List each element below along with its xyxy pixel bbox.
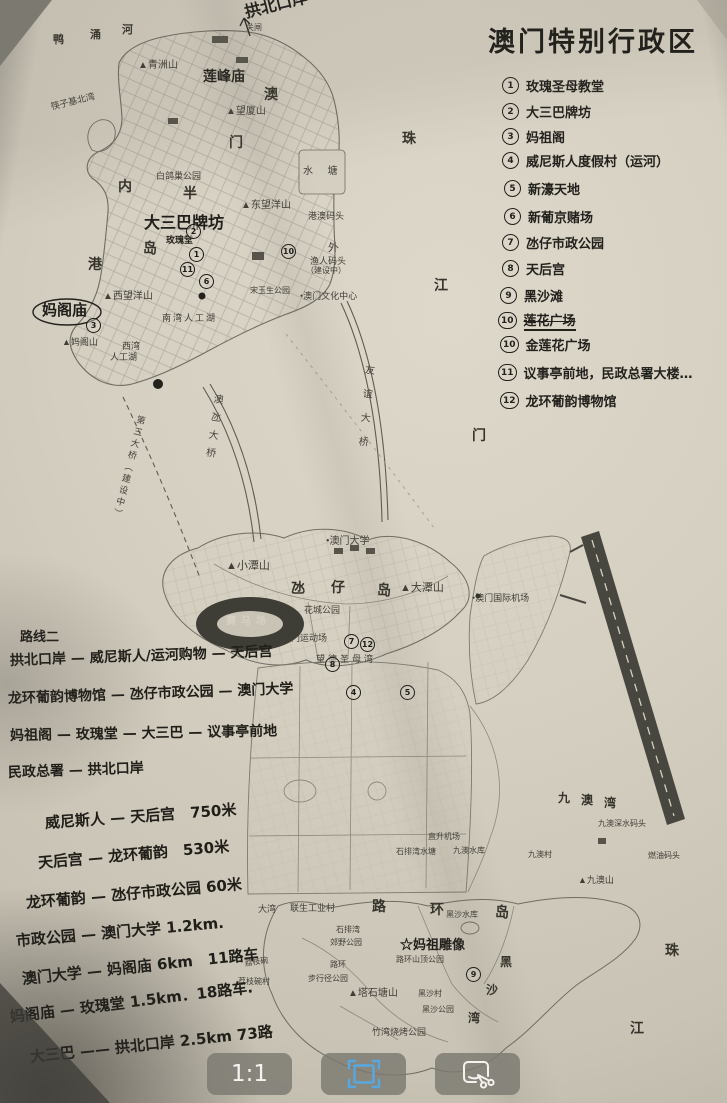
- viewer-toolbar: 1:1: [0, 1053, 727, 1095]
- map-photo[interactable]: 拱北口岸关闸鸭涌河▲青洲山筷子基北湾莲峰庙▲望厦山澳门水 塘白鸽巢公园内港半岛大…: [0, 0, 727, 1103]
- screenshot-cut-button[interactable]: [435, 1053, 520, 1095]
- screenshot-cut-icon: [460, 1058, 496, 1090]
- zoom-1-1-label: 1:1: [231, 1061, 268, 1087]
- page-title: 澳门特别行政区: [488, 20, 698, 59]
- photo-viewer-screen: 拱北口岸关闸鸭涌河▲青洲山筷子基北湾莲峰庙▲望厦山澳门水 塘白鸽巢公园内港半岛大…: [0, 0, 727, 1103]
- distance-note-line: 市政公园 — 澳门大学 1.2km.: [15, 912, 225, 951]
- distance-note-line: 威尼斯人 — 天后宫 750米: [44, 799, 237, 833]
- crop-button[interactable]: [321, 1053, 406, 1095]
- distance-note-line: 天后宫 — 龙环葡韵 530米: [37, 835, 230, 873]
- crop-frame-icon: [347, 1059, 381, 1089]
- distance-notes: 威尼斯人 — 天后宫 750米天后宫 — 龙环葡韵 530米龙环葡韵 — 氹仔市…: [0, 0, 727, 1103]
- distance-note-line: 龙环葡韵 — 氹仔市政公园 60米: [25, 873, 243, 913]
- zoom-1-1-button[interactable]: 1:1: [207, 1053, 292, 1095]
